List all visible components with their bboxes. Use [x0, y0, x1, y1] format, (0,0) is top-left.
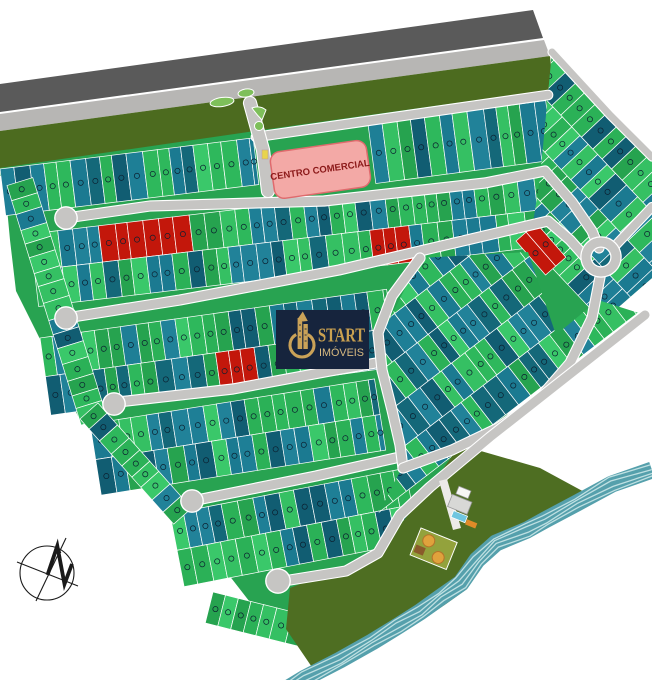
svg-text:IMÓVEIS: IMÓVEIS [319, 346, 364, 359]
svg-text:START: START [318, 325, 365, 347]
